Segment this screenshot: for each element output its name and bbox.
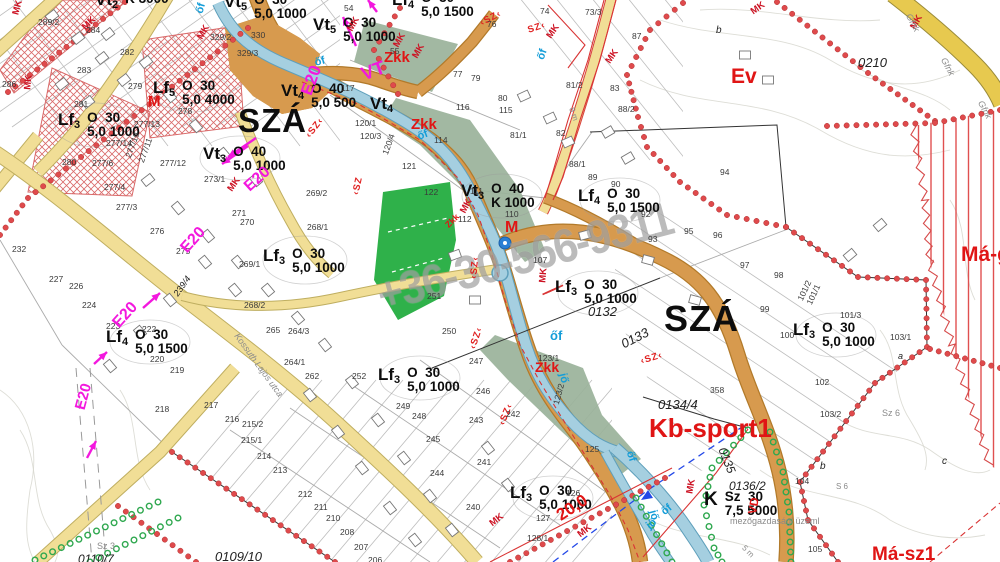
watercourse-label: jő [557,372,570,384]
parcel-number: 280 [62,158,76,167]
parcel-number: 215/1 [241,436,262,445]
map-annotation: Sz 6 [882,409,900,418]
survey-parcel-number: b [820,462,826,472]
special-zone-label: Má-g [961,244,1000,265]
parcel-number: 276 [150,227,164,236]
parcel-number: 214 [257,452,271,461]
survey-parcel-number: 0210 [858,56,887,69]
parcel-number: 77 [453,70,462,79]
parcel-number: 279 [128,82,142,91]
zone-code-label: KSz 307,5 5000 [704,490,777,517]
zone-code-label: Lf5O 305,0 4000 [153,79,235,106]
zone-code-label: Lf3O 305,0 1000 [378,366,460,393]
special-zone-label: Ev [731,66,757,87]
map-annotation: S 6 [836,483,848,491]
parcel-number: 99 [760,305,769,314]
parcel-number: 208 [340,528,354,537]
parcel-number: 80 [498,94,507,103]
parcel-number: 111 [470,187,483,196]
watercourse-label: őf [624,450,638,463]
parcel-number: 232 [12,245,26,254]
parcel-number: 286 [2,80,16,89]
parcel-number: 211 [314,503,328,512]
parcel-number: 120/1 [355,119,376,128]
parcel-number: 269/2 [306,189,327,198]
parcel-number: 103/2 [820,410,841,419]
parcel-number: 128/1 [527,534,548,543]
cadastral-map-canvas: +36-30-566-9311 Vt2K 3000Vt5O 305,0 1000… [0,0,1000,562]
parcel-number: 241 [477,458,491,467]
zone-code-label: Lf4O 305,0 1500 [392,0,474,18]
mk-boundary-label: MK [226,176,242,194]
watercourse-label: őf [536,48,550,62]
parcel-number: 268/2 [244,301,265,310]
survey-parcel-number: a [898,352,903,361]
parcel-number: 249 [396,402,410,411]
sz-road-marker: ‹SZ‹ [304,116,325,140]
parcel-number: 289/2 [38,18,59,27]
parcel-number: 103/1 [890,333,911,342]
parcel-number: 281 [74,100,88,109]
district-label: SZÁ [238,104,307,137]
parcel-number: 126 [566,489,580,498]
parcel-number: 226 [69,282,83,291]
special-zone-label: M [505,220,518,236]
sz-road-marker: ‹SZ‹ [640,351,664,367]
parcel-number: 282 [120,48,134,57]
survey-parcel-number: c [942,457,947,467]
street-name: Gfnk [939,56,956,77]
parcel-number: 284 [86,26,100,35]
parcel-number: 273/1 [204,175,225,184]
map-annotation: Sz 3 [97,542,115,551]
parcel-number: 114 [434,136,448,145]
sz-road-marker: ‹SZ‹ [468,326,484,350]
parcel-number: 55 [390,47,399,56]
zone-code-label: Vt2K 3000 [95,0,169,11]
survey-parcel-number: 0110/7 [78,553,114,562]
parcel-number: 217 [204,401,218,410]
zone-code-label: Vt5O 305,0 1000 [224,0,307,20]
parcel-number: 245 [426,435,440,444]
parcel-number: 247 [469,357,483,366]
parcel-number: 242 [506,410,520,419]
zone-code-label: Lf3O 305,0 1000 [263,247,345,274]
parcel-number: 123/1 [538,354,559,363]
parcel-number: 54 [344,4,353,13]
agricultural-facility-note: mezőgazdaságl üzeml [730,517,820,526]
parcel-number: 283 [77,66,91,75]
mk-boundary-label: MK [11,0,24,16]
survey-parcel-number: b [716,26,722,36]
parcel-number: 74 [540,7,549,16]
map-annotation: 8 m [567,107,579,122]
parcel-number: 100 [780,331,794,340]
parcel-number: 127 [536,514,550,523]
parcel-number: 212 [298,490,312,499]
zone-code-label: Lf3O 305,0 1000 [58,111,140,138]
mk-boundary-label: MK [576,523,593,540]
parcel-number: 251 [427,292,441,301]
parcel-number: 219 [170,366,184,375]
district-label: SZÁ [664,301,739,337]
zone-code-label: Vt3O 405,0 1000 [203,145,286,172]
parcel-number: 112 [458,215,472,224]
parcel-number: 88/2 [618,105,635,114]
parcel-number: 264/3 [288,327,309,336]
parcel-number: 207 [354,543,368,552]
parcel-number: 116 [456,103,470,112]
survey-parcel-number: 0133 [619,326,651,351]
parcel-number: 262 [305,372,319,381]
parcel-number: 117 [341,84,355,93]
parcel-number: 358 [710,386,724,395]
parcel-number: 110 [505,210,519,219]
mk-boundary-label: MK [488,512,505,529]
survey-parcel-number: 0136/2 [729,480,766,492]
parcel-number: 329/2 [210,33,231,42]
parcel-number: 224 [82,301,96,310]
mk-boundary-label: MK [23,75,34,91]
parcel-number: 277/3 [116,203,137,212]
parcel-number: 96 [713,231,722,240]
parcel-number: 79 [471,74,480,83]
parcel-number: 218 [155,405,169,414]
mk-boundary-label: MK [545,23,561,41]
parcel-number: 81/1 [510,131,527,140]
zone-code-label: Vt4 [370,95,393,115]
parcel-number: 248 [412,412,426,421]
special-zone-label: Kb-sport1 [649,415,772,441]
survey-parcel-number: 239/4 [172,274,192,298]
parcel-number: 243 [469,416,483,425]
parcel-number: 120/3 [360,132,381,141]
parcel-number: 125 [585,445,599,454]
parcel-number: 89 [588,173,597,182]
parcel-number: 101/3 [840,311,861,320]
parcel-number: 107 [533,256,547,265]
parcel-number: 97 [740,261,749,270]
parcel-number: 330 [251,31,265,40]
parcel-number: 220 [150,355,164,364]
special-zone-label: VD [746,497,761,516]
parcel-number: 206 [368,556,382,562]
parcel-number: 329/3 [237,49,258,58]
parcel-number: 277/11 [137,137,154,164]
parcel-number: 76 [487,20,496,29]
parcel-number: 227 [49,275,63,284]
survey-parcel-number: 0135 [716,446,737,475]
sz-road-marker: ‹SZ‹ [469,256,480,279]
parcel-number: 104 [795,477,809,486]
parcel-number: 277/13 [134,120,160,129]
parcel-number: 240 [466,503,480,512]
parcel-number: 94 [720,168,729,177]
parcel-number: 244 [430,469,444,478]
parcel-number: 246 [476,387,490,396]
parcel-number: 268/1 [307,223,328,232]
parcel-number: 252 [352,372,366,381]
watercourse-label: őf [550,329,562,342]
parcel-number: 81/2 [566,81,583,90]
zone-code-label: Lf3O 305,0 1000 [555,278,637,305]
parcel-number: 278 [178,107,192,116]
mk-boundary-label: MK [749,0,767,16]
watercourse-label: őf [195,2,208,15]
parcel-number: 95 [684,227,693,236]
parcel-number: 93 [648,235,657,244]
mk-boundary-label: MK [685,478,697,494]
route-designation-label: E20 [73,382,94,412]
sz-road-marker: ‹SZ [351,176,364,196]
parcel-number: 73/3 [585,8,602,17]
map-annotation: 5 m [740,544,755,559]
parcel-number: 120/4 [381,133,396,156]
parcel-number: 121 [402,162,416,171]
parcel-number: 102 [815,378,829,387]
parcel-number: 222 [142,325,156,334]
parcel-number: 87 [632,32,641,41]
street-name: Gfnk [976,99,993,120]
parcel-number: 122 [424,188,438,197]
special-zone-label: Má-sz1 [872,545,935,562]
parcel-number: 210 [326,514,340,523]
parcel-number: 277/12 [160,159,186,168]
mk-boundary-label: MK [538,268,549,284]
zone-code-label: Lf3O 305,0 1000 [793,321,875,348]
map-text-layer: Vt2K 3000Vt5O 305,0 1000Vt5O 305,0 1000L… [0,0,1000,562]
parcel-number: 105 [808,545,822,554]
parcel-number: 90 [611,180,620,189]
parcel-number: 82 [556,129,565,138]
parcel-number: 83 [610,84,619,93]
parcel-number: 277/4 [104,183,125,192]
survey-parcel-number: 0109/10 [215,550,262,562]
parcel-number: 123/2 [552,383,566,406]
parcel-number: 277/6 [92,159,113,168]
parcel-number: 213 [273,466,287,475]
parcel-number: 264/1 [284,358,305,367]
survey-parcel-number: 0134/4 [658,398,698,411]
parcel-number: 216 [225,415,239,424]
parcel-number: 215/2 [242,420,263,429]
parcel-number: 269/1 [239,260,260,269]
watercourse-label: őf [659,503,674,518]
parcel-number: 270 [240,218,254,227]
mk-boundary-label: MK [411,43,427,61]
parcel-number: 92 [641,210,650,219]
mk-boundary-label: MK [604,48,620,66]
parcel-number: 88/1 [569,160,586,169]
parcel-number: 115 [499,106,513,115]
parcel-number: 98 [774,271,783,280]
parcel-number: 265 [266,326,280,335]
street-name: Kossuth Lajos utca [232,332,284,399]
survey-parcel-number: 0132 [588,305,617,318]
parcel-number: 250 [442,327,456,336]
special-zone-label: M [148,94,161,109]
